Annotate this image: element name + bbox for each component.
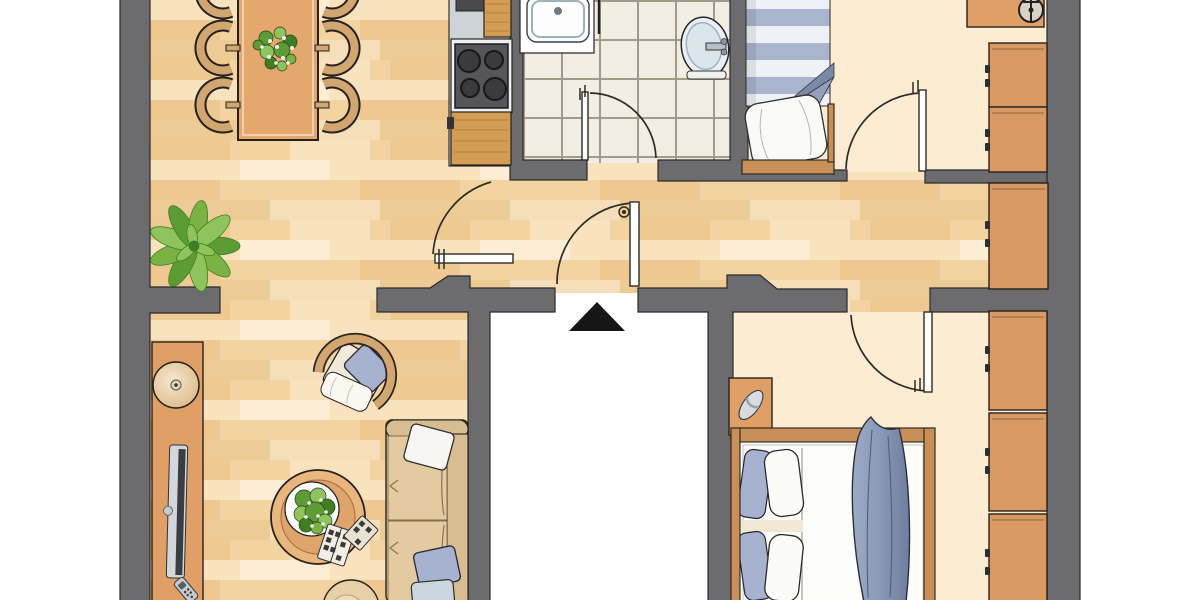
bed-frame: [742, 160, 834, 174]
pillow: [743, 93, 829, 169]
single-bed: [742, 0, 834, 174]
sofa: [386, 420, 468, 600]
floor-plan: [0, 0, 1200, 600]
wardrobe: [985, 514, 1047, 600]
bed-frame: [828, 104, 834, 162]
floor-plan-svg: [0, 0, 1200, 600]
towel-rail-icon: [687, 71, 726, 79]
stairwell-floor: [490, 312, 708, 600]
cabinet-handle-icon: [447, 117, 454, 129]
wardrobe: [985, 43, 1047, 107]
shower-tray: [520, 0, 594, 53]
bed-center-gap: [741, 520, 803, 532]
drain-icon: [554, 7, 562, 15]
bed-frame: [924, 428, 935, 600]
kitchen-cabinet: [447, 112, 511, 165]
pillow: [763, 448, 805, 518]
wardrobe: [985, 183, 1048, 289]
wardrobe: [985, 107, 1047, 172]
kitchenette: [447, 0, 512, 166]
double-bed: [731, 417, 935, 600]
bed-frame: [731, 428, 740, 600]
kitchen-sink-unit: [456, 0, 484, 11]
stove: [451, 39, 512, 113]
nightstand: [729, 378, 772, 435]
bed-frame: [731, 428, 935, 442]
blue-drape: [852, 417, 909, 600]
kitchen-cabinet: [484, 0, 511, 37]
wardrobe: [985, 311, 1047, 410]
decor-dish: [153, 362, 199, 408]
pillow: [411, 579, 455, 600]
dining-table: [238, 0, 318, 140]
pillow: [764, 533, 805, 600]
wardrobe: [985, 413, 1047, 511]
side-table: [967, 0, 1044, 27]
